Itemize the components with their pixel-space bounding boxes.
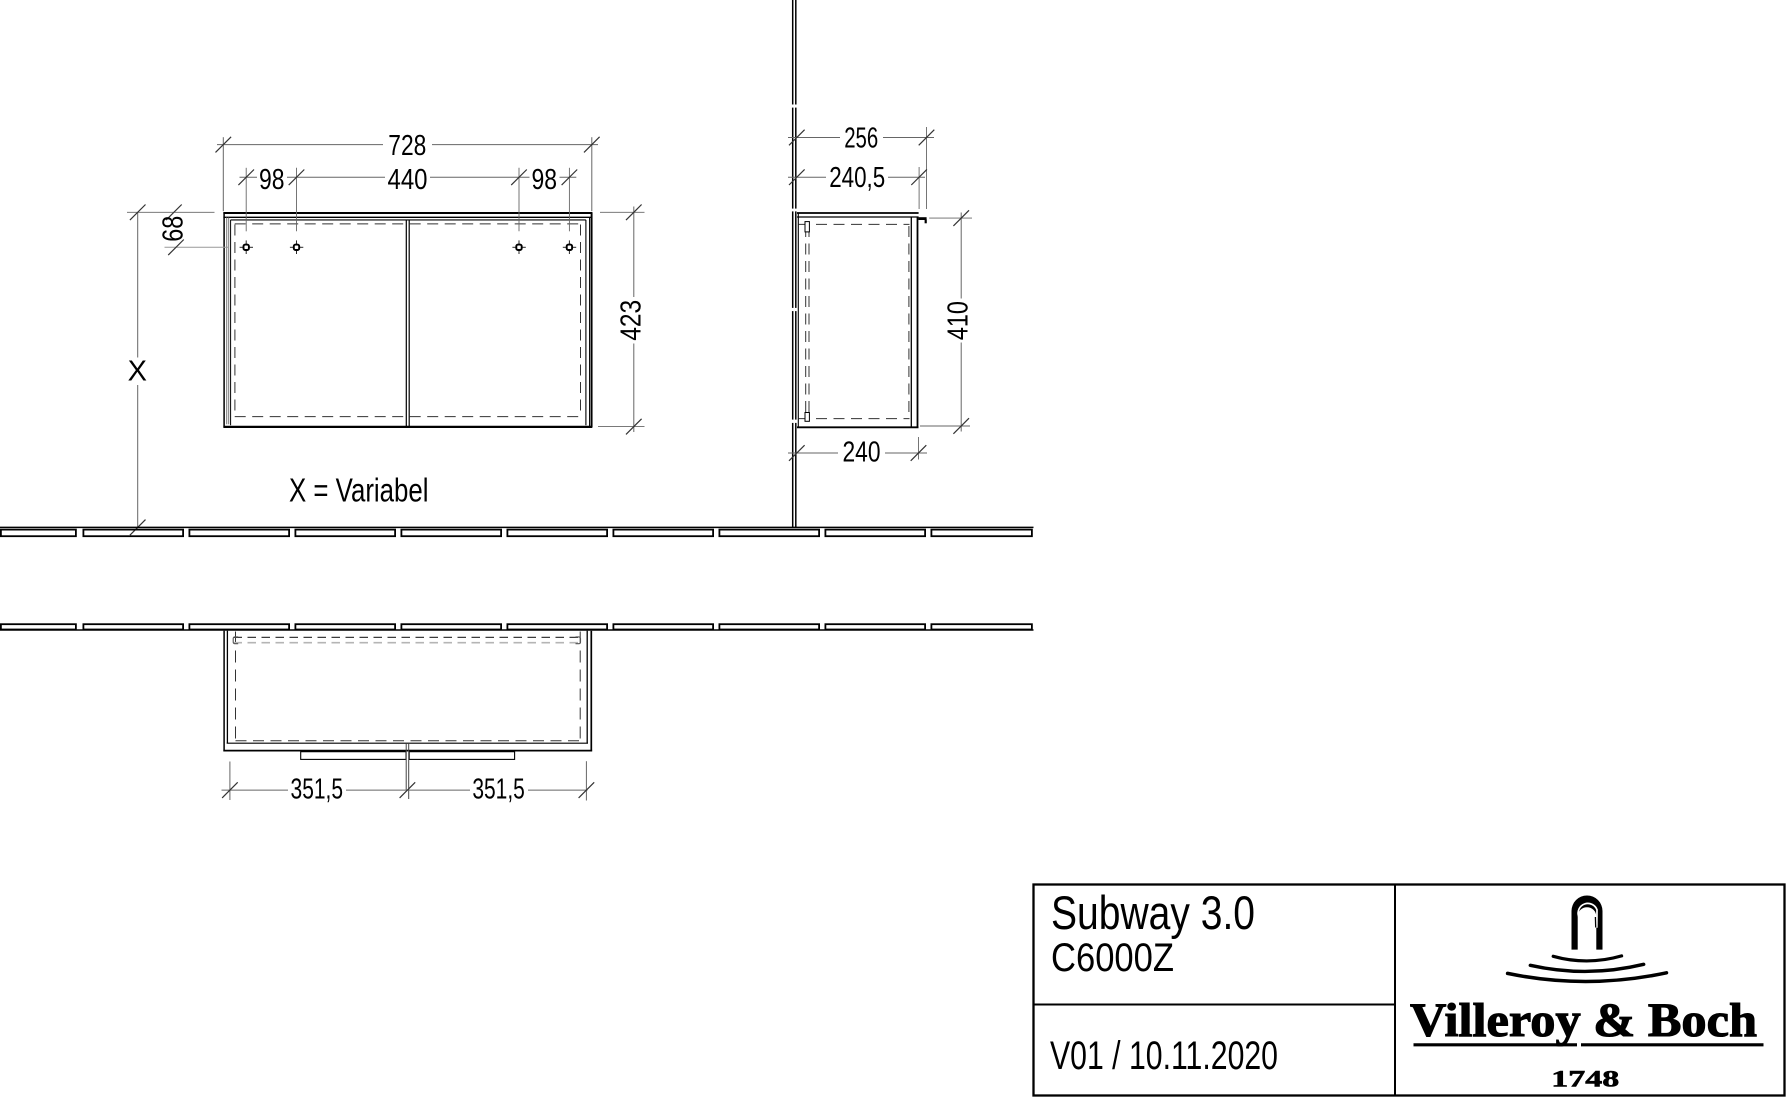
svg-text:440: 440 [388, 164, 428, 196]
svg-text:V01 / 10.11.2020: V01 / 10.11.2020 [1050, 1034, 1278, 1078]
svg-text:1748: 1748 [1551, 1066, 1619, 1091]
svg-text:X: X [128, 356, 147, 388]
svg-text:240: 240 [843, 436, 881, 468]
svg-text:X = Variabel: X = Variabel [289, 472, 429, 509]
svg-text:423: 423 [616, 300, 648, 341]
svg-text:98: 98 [532, 164, 558, 196]
svg-text:351,5: 351,5 [291, 774, 344, 806]
svg-text:C6000Z: C6000Z [1051, 936, 1174, 980]
svg-text:68: 68 [158, 216, 190, 242]
svg-text:Villeroy & Boch: Villeroy & Boch [1410, 994, 1757, 1047]
svg-text:351,5: 351,5 [472, 774, 525, 806]
svg-text:Subway 3.0: Subway 3.0 [1051, 887, 1255, 940]
svg-text:728: 728 [388, 130, 426, 162]
svg-text:240,5: 240,5 [829, 162, 885, 194]
svg-text:410: 410 [943, 301, 975, 340]
svg-text:256: 256 [844, 123, 878, 155]
svg-text:98: 98 [259, 164, 285, 196]
